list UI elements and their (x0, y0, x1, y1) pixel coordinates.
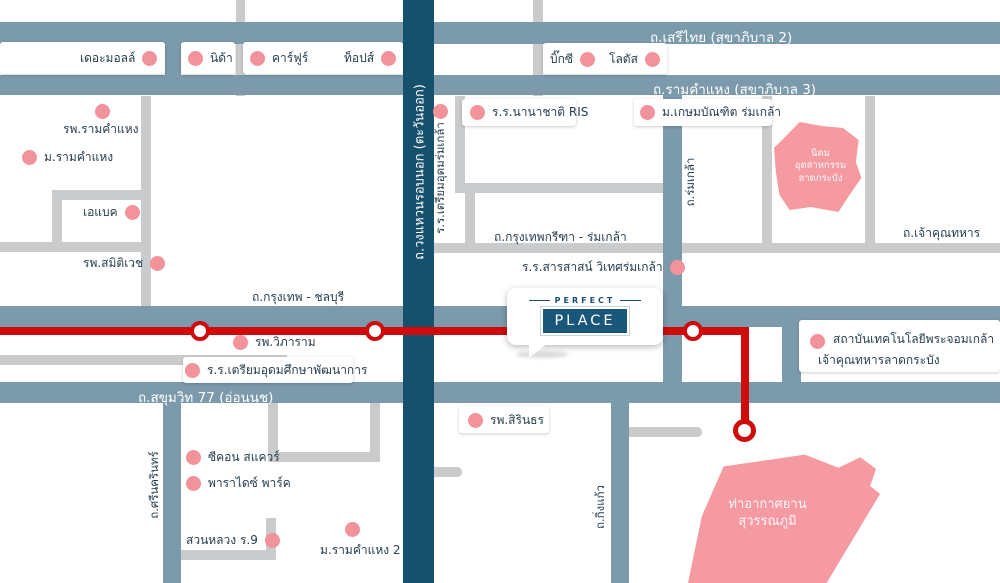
poi-label: ร.ร.สารสาสน์ วิเทศร่มเกล้า (522, 258, 663, 277)
poi-lotus: โลตัส (609, 48, 660, 70)
poi-label: ม.เกษมบัณฑิต ร่มเกล้า (662, 103, 781, 122)
poi-dot-icon (22, 150, 37, 165)
poi-label: พาราไดซ์ พาร์ค (208, 474, 291, 493)
poi-label: บิ๊กซี (550, 50, 573, 69)
poi-tops: ท็อปส์ (344, 47, 396, 69)
location-map: ถ.เสรีไทย (สุขาภิบาล 2) ถ.รามคำแหง (สุขา… (0, 0, 1000, 583)
poi-sirindhorn-hospital: รพ.สิรินธร (468, 409, 544, 431)
poi-triam-udom-pattanakarn: ร.ร.เตรียมอุดมศึกษาพัฒนาการ (185, 359, 367, 381)
poi-dot-icon (580, 52, 595, 67)
road-gray-sw-loop-bottom (268, 452, 380, 462)
poi-label: รพ.วิภาราม (255, 333, 316, 352)
poi-dot-ramkhamhaeng-2 (345, 522, 360, 537)
poi-dot-icon (470, 105, 485, 120)
poi-ramkhamhaeng-hospital: รพ.รามคำแหง (63, 120, 139, 139)
poi-vipharam-hospital: รพ.วิภาราม (233, 331, 316, 353)
poi-ris-school: ร.ร.นานาชาติ RIS (470, 101, 588, 123)
poi-dot-icon (468, 413, 483, 428)
poi-samitivej-hospital: รพ.สมิติเวช (83, 252, 165, 274)
poi-label: ซีคอน สแควร์ (208, 448, 280, 467)
poi-label: ม.รามคำแหง (44, 148, 113, 167)
poi-label: นิด้า (210, 49, 233, 68)
poi-dot-kmitl (810, 334, 825, 349)
poi-dot-icon (186, 450, 201, 465)
road-gray-stub-kingkaew (620, 427, 702, 437)
airport-line2: สุวรรณภูมิ (710, 514, 825, 531)
poi-label: โลตัส (609, 50, 638, 69)
poi-kmitl-line1: สถาบันเทคโนโลยีพระจอมเกล้า (833, 330, 994, 349)
poi-dot-icon (142, 51, 157, 66)
road-gray-mid-horiz (455, 183, 665, 193)
poi-label: ท็อปส์ (344, 49, 374, 68)
poi-abac: เอแบค (83, 201, 140, 223)
poi-dot-ramkhamhaeng-hospital (95, 104, 110, 119)
poi-the-mall: เดอะมอลล์ (80, 47, 157, 69)
perfect-place-callout: PERFECT PLACE (507, 288, 663, 345)
poi-label: ร.ร.นานาชาติ RIS (492, 103, 588, 122)
road-srinagarindra (163, 382, 181, 583)
brand-rule-left (529, 300, 550, 301)
poi-dot-icon (265, 533, 280, 548)
road-ramkhamhaeng (0, 75, 1000, 95)
poi-dot-icon (185, 363, 200, 378)
poi-label: เอแบค (83, 203, 118, 222)
poi-label: ร.ร.เตรียมอุดมศึกษาพัฒนาการ (207, 361, 367, 380)
road-kingkaew (611, 398, 629, 583)
route-node-2 (365, 321, 385, 341)
route-node-1 (190, 321, 210, 341)
road-label-kingkaew: ถ.กิ่งแก้ว (592, 485, 610, 529)
brand-rule-right (620, 300, 641, 301)
road-label-krungthep-kreetha: ถ.กรุงเทพกรีฑา - ร่มเกล้า (494, 228, 627, 247)
poi-dot-icon (250, 51, 265, 66)
poi-dot-icon (640, 105, 655, 120)
airport-line1: ท่าอากาศยาน (710, 497, 825, 514)
brand-main-box: PLACE (541, 307, 629, 335)
road-label-srinagarindra: ถ.ศรีนครินทร์ (146, 451, 164, 518)
brand-main-label: PLACE (554, 313, 615, 329)
poi-label: รพ.สิรินธร (490, 411, 544, 430)
poi-dot-icon (381, 51, 396, 66)
road-serithai (0, 22, 1000, 44)
road-gray-left-loop-top (52, 190, 151, 200)
industrial-line3: ลาดกระบัง (778, 173, 863, 185)
poi-seacon-square: ซีคอน สแควร์ (186, 446, 280, 468)
poi-suan-luang: สวนหลวง ร.9 (186, 529, 280, 551)
poi-ramkhamhaeng-2: ม.รามคำแหง 2 (320, 541, 401, 560)
poi-nida: นิด้า (188, 47, 233, 69)
route-node-terminal (733, 419, 756, 442)
industrial-line2: อุตสาหกรรม (778, 160, 863, 172)
industrial-estate-label: นิคม อุตสาหกรรม ลาดกระบัง (778, 148, 863, 185)
poi-label: รพ.สมิติเวช (83, 254, 143, 273)
road-gray-right-2 (865, 96, 875, 253)
poi-dot-icon (150, 256, 165, 271)
poi-dot-icon (186, 476, 201, 491)
road-gray-sw-loop-right (370, 402, 380, 462)
poi-paradise-park: พาราไดซ์ พาร์ค (186, 472, 291, 494)
road-gray-left-loop-bottom (0, 242, 151, 252)
poi-label: สวนหลวง ร.9 (186, 531, 258, 550)
brand-top-label: PERFECT (555, 296, 616, 305)
poi-dot-icon (645, 52, 660, 67)
poi-carrefour: คาร์ฟูร์ (250, 47, 308, 69)
road-gray-sw-stub-horiz (172, 550, 276, 560)
poi-dot-icon (125, 205, 140, 220)
poi-dot-icon (188, 51, 203, 66)
road-romklao (663, 95, 682, 398)
road-label-chao-khun-thahan: ถ.เจ้าคุณทหาร (903, 224, 980, 243)
road-label-outer-ring: ถ.วงแหวนรอบนอก (ตะวันออก) (409, 84, 430, 260)
road-gray-left-loop-right (141, 96, 151, 306)
road-label-serithai: ถ.เสรีไทย (สุขาภิบาล 2) (650, 26, 792, 48)
airport-label: ท่าอากาศยาน สุวรรณภูมิ (710, 497, 825, 531)
road-label-krungthep-chonburi: ถ.กรุงเทพ - ชลบุรี (252, 288, 344, 307)
route-line-vertical (741, 327, 749, 428)
poi-dot-triam-udom-romklao (433, 104, 448, 119)
industrial-line1: นิคม (778, 148, 863, 160)
poi-kasem-bundit: ม.เกษมบัณฑิต ร่มเกล้า (640, 101, 781, 123)
poi-label: คาร์ฟูร์ (272, 49, 308, 68)
poi-dot-icon (233, 335, 248, 350)
poi-kmitl-line2: เจ้าคุณทหารลาดกระบัง (818, 351, 940, 370)
poi-ramkhamhaeng-university: ม.รามคำแหง (22, 146, 113, 168)
road-connector-top (165, 22, 181, 95)
callout-pointer (529, 343, 548, 358)
road-label-sukhumvit77: ถ.สุขุมวิท 77 (อ่อนนุช) (138, 386, 273, 408)
brand-top-row: PERFECT (507, 296, 663, 305)
route-node-3 (683, 321, 703, 341)
poi-triam-udom-romklao: ร.ร.เตรียมอุดมร่มเกล้า (432, 122, 450, 234)
poi-dot-icon (670, 260, 685, 275)
poi-big-c: บิ๊กซี (550, 48, 595, 70)
poi-label: เดอะมอลล์ (80, 49, 135, 68)
road-label-ramkhamhaeng: ถ.รามคำแหง (สุขาภิบาล 3) (653, 78, 816, 100)
road-label-romklao: ถ.ร่มเกล้า (682, 158, 700, 207)
poi-sarasas-school: ร.ร.สารสาสน์ วิเทศร่มเกล้า (522, 256, 685, 278)
